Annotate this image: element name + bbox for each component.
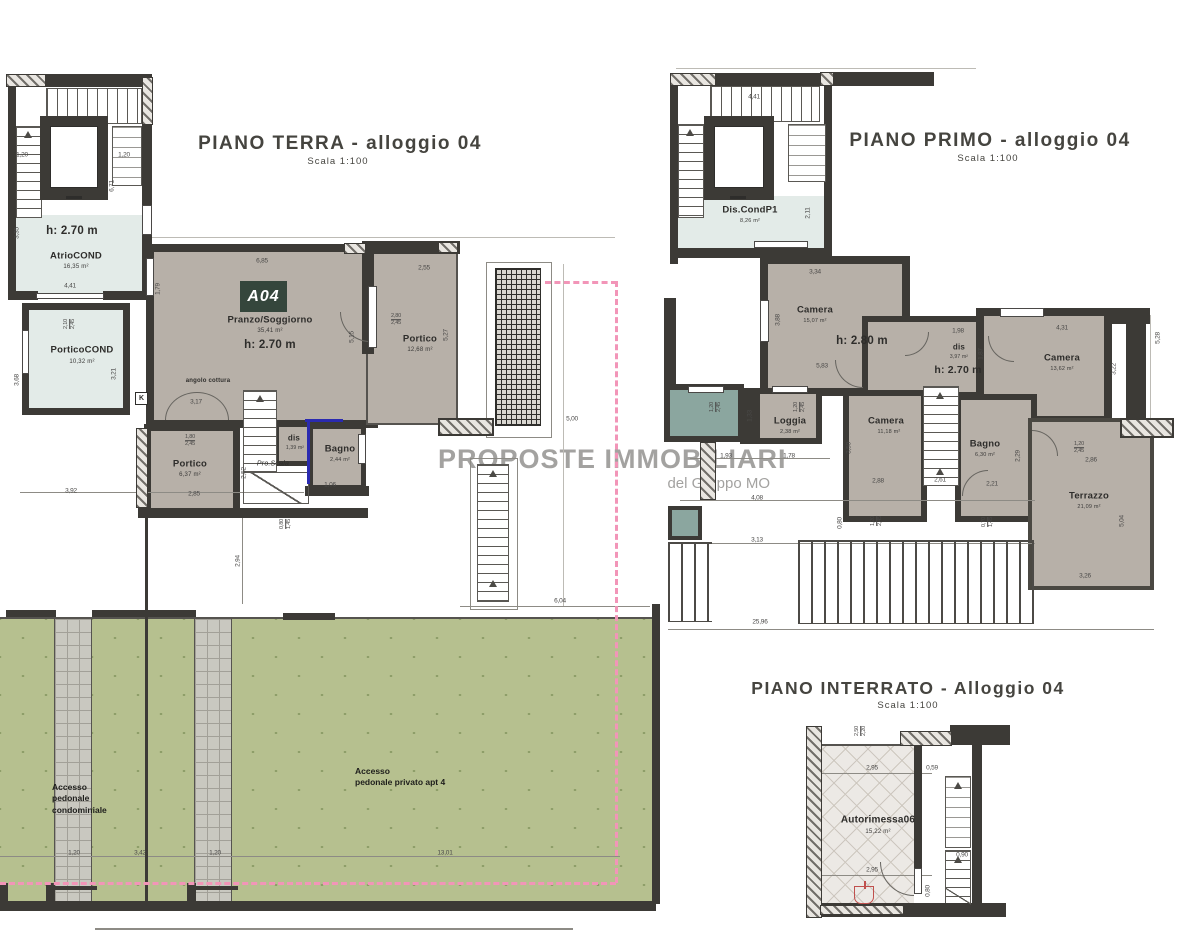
bagno-area-label: 2,44 m² [330,457,350,463]
stair-note-label: Pro.Scala [257,461,289,468]
door-gap [914,868,922,894]
camera-top-name-label: Camera [797,305,833,316]
gate-jamb [46,883,55,909]
dis-name-label: dis [288,434,300,443]
dimension-label: 0,80 [837,517,844,529]
dimension-label: 3,35 [14,227,21,239]
terrazzo-name-label: Terrazzo [1069,491,1109,502]
fixture-symbol [854,886,874,904]
dimension-label: 4,31 [1056,325,1068,332]
camera-right-area-label: 13,62 m² [1050,366,1073,372]
dimension-label: 5,28 [1155,332,1162,344]
dimension-label: 4,41 [64,283,76,290]
up-arrow-icon [936,468,944,475]
stair-diagonal [945,880,971,912]
dimension-line [242,512,243,604]
loggia-name-label: Loggia [774,416,806,427]
dimension-label: 6,71 [109,180,116,192]
wall [8,291,38,300]
stair-landing [243,472,309,504]
stair-flight-dashed [788,124,826,182]
portico-small-area-label: 6,37 m² [179,472,201,478]
hatched-slab [1120,418,1174,438]
dimension-label: 2,94 [235,555,242,567]
bagno-name-label: Bagno [325,444,356,455]
dimension-label: 5,04 [1119,515,1126,527]
boundary-dash [615,281,618,883]
basement-title: PIANO INTERRATO - Alloggio 04 [751,678,1064,699]
wall [664,298,676,388]
dis-ff-name-label: dis [953,343,965,352]
balcony-railing [798,540,1034,624]
garage-area-label: 15,22 m² [865,829,890,835]
hatched-wall [820,905,904,915]
dimension-label: 3,68 [14,374,21,386]
dimension-label: 0,90 [956,852,968,859]
window [22,330,29,374]
window [772,386,808,393]
camera-right-name-label: Camera [1044,353,1080,364]
wall-line [95,928,573,930]
dimension-label: 2,52 [241,467,248,479]
discond-area-label: 8,26 m² [740,218,760,224]
dimension-label: 6,04 [554,598,566,605]
dimension-label: 2,85 [188,491,200,498]
dimension-label: 1,202,45 [870,516,884,526]
first-floor-scale: Scala 1:100 [957,153,1018,164]
dimension-line [680,500,1035,501]
garage-name-label: Autorimessa06 [841,815,915,826]
basement-scale: Scala 1:100 [877,700,938,711]
hatched-wall [136,428,148,508]
dimension-label: 2,95 [866,765,878,772]
dimension-label: 1,20 [209,850,221,857]
camera-mid-area-label: 11,18 m² [878,429,901,435]
wall [670,248,832,258]
dis-area-label: 1,39 m² [286,445,304,451]
living-area-label: 35,41 m² [257,328,282,334]
sliding-door [36,293,104,299]
wall [0,901,656,911]
dis-ff-area-label: 3,97 m² [950,354,968,360]
dimension-label: 1,202,45 [709,402,723,412]
hatched-wall [344,243,366,254]
portico-cond-name-label: PorticoCOND [51,345,114,356]
dimension-label: 1,20 [16,152,28,159]
up-arrow-icon [489,470,497,477]
garden [0,619,656,906]
up-arrow-icon [954,782,962,789]
wall [834,72,934,86]
neighbor-terrace [668,506,702,540]
camera-mid-name-label: Camera [868,416,904,427]
dimension-label: 3,13 [751,537,763,544]
k-marker: K [135,392,148,405]
dimension-label: 6,85 [256,258,268,265]
dimension-label: 3,34 [809,269,821,276]
blue-marker-line [305,419,343,422]
dimension-label: 2,86 [1085,457,1097,464]
loggia-area-label: 2,38 m² [780,429,800,435]
living-name-label: Pranzo/Soggiorno [227,315,312,326]
boundary-dash [0,882,616,885]
window [368,286,377,348]
wall [138,508,368,518]
elevator-door-mark [730,196,746,199]
dimension-label: 1,87 [978,348,985,360]
hatched-wall [438,242,458,253]
wall [972,726,982,916]
window [1000,308,1044,317]
window [146,258,154,296]
wall [305,486,369,496]
dimension-line [563,264,564,606]
ground-floor-title: PIANO TERRA - alloggio 04 [198,133,482,155]
dimension-label: 1,33 [747,410,754,422]
gate-lintel [196,886,238,890]
dimension-line [90,237,615,238]
dimension-label: 0,801,45 [279,519,293,529]
pedestrian-path [54,619,92,906]
dimension-label: 4,08 [751,495,763,502]
gate-jamb [187,883,196,909]
hatched-wall [806,726,822,918]
dimension-label: 1,93 [720,453,732,460]
wall [0,883,8,911]
dimension-label: 3,50 [846,442,853,454]
dimension-label: 3,88 [775,314,782,326]
dimension-label: 2,95 [866,867,878,874]
up-arrow-icon [686,129,694,136]
hatched-wall [700,442,716,500]
portico-small-name-label: Portico [173,459,207,470]
portico-big-area-label: 12,68 m² [407,347,432,353]
dimension-label: 5,00 [566,416,578,423]
dimension-label: 5,83 [816,363,828,370]
dimension-label: 3,92 [65,488,77,495]
ground-floor-scale: Scala 1:100 [307,156,368,167]
dimension-label: 1,20 [68,850,80,857]
wall [1126,316,1146,424]
dimension-label: 2,29 [1015,450,1022,462]
dimension-label: 1,98 [952,328,964,335]
atrio-name-label: AtrioCOND [50,251,102,262]
dimension-label: 1,79 [155,283,162,295]
dimension-label: 13,01 [437,850,452,857]
hatched-wall [142,77,153,125]
dimension-label: 5,27 [443,329,450,341]
portico-cond-area-label: 10,32 m² [69,359,94,365]
bagno-ff-area-label: 6,30 m² [975,452,995,458]
dimension-label: 2,88 [872,478,884,485]
wall [8,87,16,293]
first-floor-title: PIANO PRIMO - alloggio 04 [849,130,1130,152]
atrio-height-label: h: 2.70 m [46,225,98,237]
camera-top-height-label: h: 2.80 m [836,335,888,347]
dimension-line [460,606,650,607]
hatched-wall [6,74,46,87]
wall [103,291,152,300]
pedestrian-path [194,619,232,906]
up-arrow-icon [256,395,264,402]
bagno-room-ff [955,394,1037,522]
pergola-grid [495,268,541,426]
discond-name-label: Dis.CondP1 [722,205,777,216]
dimension-label: 1,20 [118,152,130,159]
dimension-label: 2,21 [986,481,998,488]
camera-mid-room [843,390,927,522]
up-arrow-icon [24,131,32,138]
wall [716,73,832,86]
window [142,205,152,235]
dimension-label: 4,41 [748,94,760,101]
dimension-label: 0,59 [926,765,938,772]
balcony-railing [668,542,712,622]
hatched-slab [438,418,494,436]
dimension-label: 3,17 [190,399,202,406]
wall [670,86,678,264]
camera-top-area-label: 15,07 m² [803,318,826,324]
dis-ff-height-label: h: 2.70 m [934,364,981,376]
up-arrow-icon [489,580,497,587]
atrio-area-label: 16,35 m² [63,264,88,270]
hatched-wall [820,72,834,86]
dimension-label: 3,21 [111,368,118,380]
stair-flight [16,126,42,218]
dimension-label: 25,96 [752,619,767,626]
dimension-label: 1,202,45 [793,402,807,412]
window [760,300,769,342]
terrazzo-area-label: 21,09 m² [1077,504,1100,510]
hatched-wall [670,73,716,86]
dimension-label: 1,06 [324,482,336,489]
stair-flight [678,124,704,218]
dimension-label: 1,802,45 [185,434,195,448]
living-height-label: h: 2.70 m [244,339,296,351]
dimension-line [668,629,1154,630]
bagno-ff-name-label: Bagno [970,439,1001,450]
dimension-label: 2,55 [418,265,430,272]
portico-big-name-label: Portico [403,334,437,345]
window [754,241,808,248]
access-condo-note: Accesso pedonale condominiale [52,782,107,816]
dimension-label: 2,502,20 [854,726,868,736]
wall [652,604,660,904]
window [688,386,724,393]
up-arrow-icon [936,392,944,399]
dimension-label: 2,102,45 [63,319,77,329]
hatched-slab [900,731,952,746]
access-private-note: Accesso pedonale privato apt 4 [355,766,445,789]
dimension-label: 1,202,45 [1074,441,1084,455]
elevator-car [50,126,98,188]
wall [283,613,335,620]
dimension-label: 2,11 [805,207,812,218]
dimension-label: 0,701,45 [981,517,995,527]
dimension-label: 0,80 [925,885,932,897]
dimension-line [0,856,620,857]
boundary-dash [545,281,617,284]
dimension-label: 2,802,45 [391,313,401,327]
elevator-car [714,126,764,188]
elevator-door-mark [66,196,82,199]
window [358,434,366,464]
dimension-label: 3,22 [1111,363,1118,375]
dimension-line [676,68,976,69]
kitchen-note-label: angolo cottura [186,378,230,384]
dimension-label: 1,78 [783,453,795,460]
dimension-label: 5,15 [349,331,356,343]
dimension-label: 2,61 [934,477,946,484]
blue-marker-line [307,422,310,484]
gate-lintel [55,886,97,890]
wall [46,74,152,87]
dimension-label: 3,42 [134,850,146,857]
floor-plan-canvas: PROPOSTE IMMOBILIARI del Gruppo MO PIANO… [0,0,1177,936]
dimension-label: 3,26 [1079,573,1091,580]
wall [92,610,196,617]
apartment-badge: A04 [240,281,287,312]
wall [6,610,56,617]
